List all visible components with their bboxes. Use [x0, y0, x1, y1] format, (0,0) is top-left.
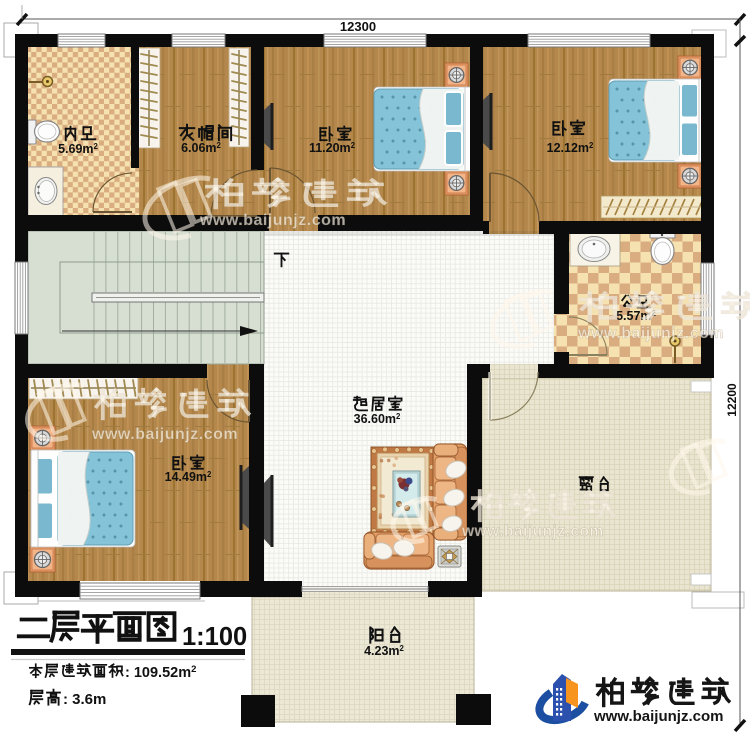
svg-text:www.baijunjz.com: www.baijunjz.com: [577, 325, 724, 342]
svg-text:4.23m2: 4.23m2: [364, 644, 404, 658]
svg-text:www.baijunjz.com: www.baijunjz.com: [199, 212, 346, 229]
svg-text:12300: 12300: [340, 19, 376, 34]
svg-text:www.baijunjz.com: www.baijunjz.com: [461, 523, 604, 540]
svg-text:12200: 12200: [725, 383, 739, 417]
svg-text:www.baijunjz.com: www.baijunjz.com: [593, 708, 723, 725]
svg-text:1:100: 1:100: [182, 623, 247, 651]
svg-text:: 109.52m2: : 109.52m2: [125, 664, 196, 681]
svg-text:36.60m2: 36.60m2: [354, 412, 401, 426]
svg-text:www.baijunjz.com: www.baijunjz.com: [91, 426, 238, 443]
svg-text:5.69m2: 5.69m2: [58, 142, 98, 156]
svg-text:14.49m2: 14.49m2: [165, 470, 212, 484]
svg-text:6.06m2: 6.06m2: [181, 141, 221, 155]
svg-text:: 3.6m: : 3.6m: [63, 691, 106, 708]
svg-text:11.20m2: 11.20m2: [309, 141, 356, 155]
svg-text:12.12m2: 12.12m2: [547, 141, 594, 155]
